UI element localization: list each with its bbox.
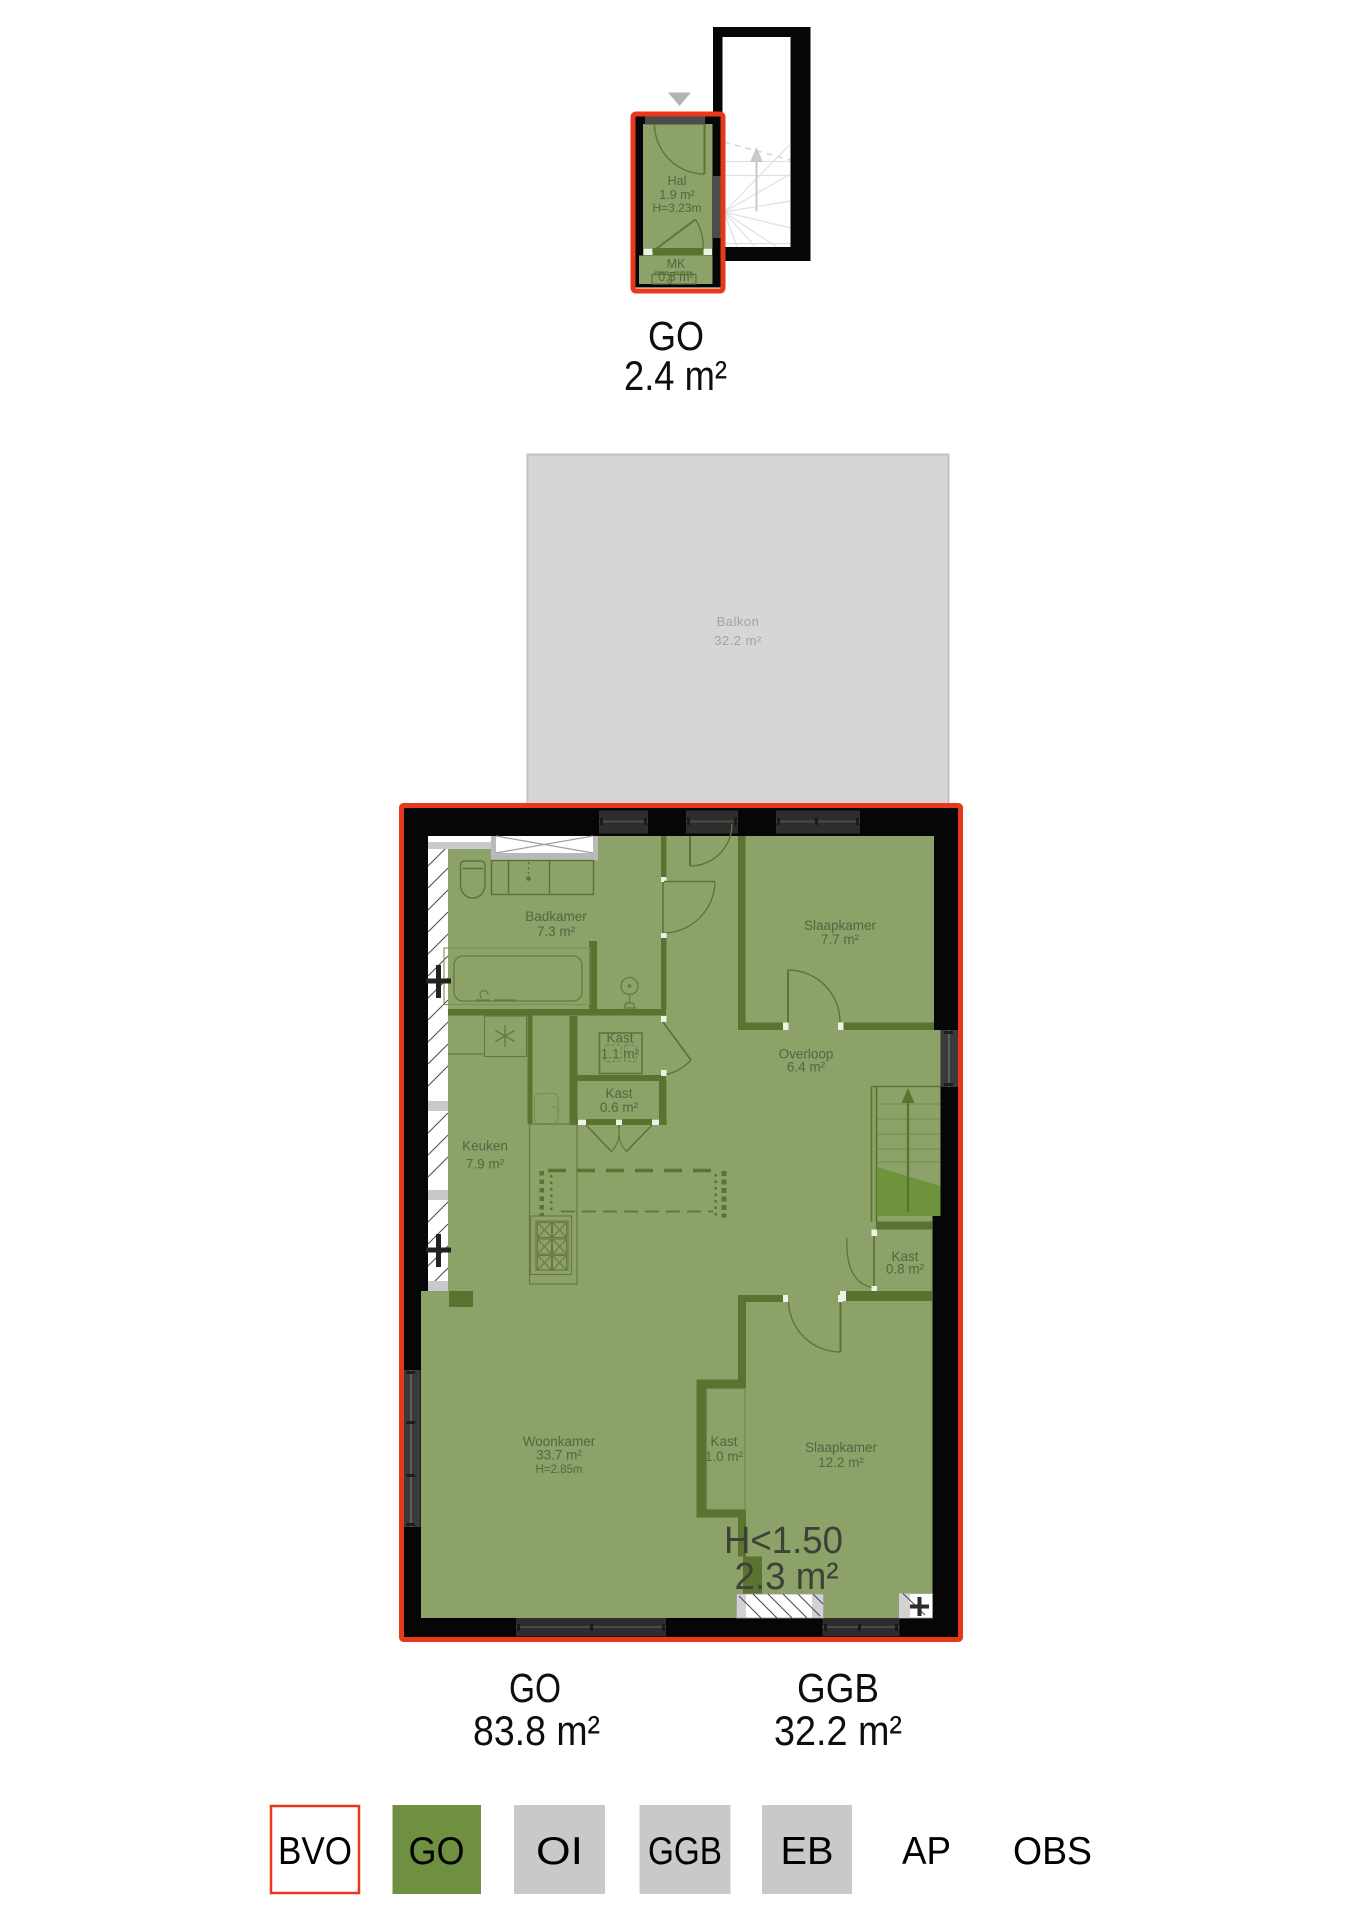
svg-text:OI: OI xyxy=(536,1830,583,1873)
svg-text:Keuken: Keuken xyxy=(462,1139,508,1154)
svg-text:MK: MK xyxy=(667,257,686,271)
svg-text:Kast: Kast xyxy=(606,1031,633,1046)
svg-text:7.7 m²: 7.7 m² xyxy=(821,932,860,947)
svg-text:0.6 m²: 0.6 m² xyxy=(600,1100,639,1115)
svg-text:Badkamer: Badkamer xyxy=(525,909,587,924)
svg-text:83.8 m²: 83.8 m² xyxy=(473,1707,600,1754)
svg-text:EB: EB xyxy=(781,1830,834,1873)
svg-text:2.4 m²: 2.4 m² xyxy=(624,352,727,399)
svg-text:7.9 m²: 7.9 m² xyxy=(466,1157,505,1172)
svg-text:Slaapkamer: Slaapkamer xyxy=(805,1440,878,1455)
svg-text:1.9 m²: 1.9 m² xyxy=(659,188,694,202)
svg-text:Kast: Kast xyxy=(710,1434,737,1449)
svg-text:H=2.85m: H=2.85m xyxy=(536,1464,583,1476)
svg-text:Slaapkamer: Slaapkamer xyxy=(804,918,877,933)
svg-text:2.3 m²: 2.3 m² xyxy=(735,1556,839,1598)
svg-text:32.2 m²: 32.2 m² xyxy=(714,633,762,648)
svg-text:6.4 m²: 6.4 m² xyxy=(787,1060,826,1075)
svg-text:Balkon: Balkon xyxy=(717,614,760,629)
svg-text:Hal: Hal xyxy=(668,174,687,188)
svg-text:Kast: Kast xyxy=(605,1086,632,1101)
svg-text:GO: GO xyxy=(509,1665,561,1711)
svg-text:1.0 m²: 1.0 m² xyxy=(705,1449,744,1464)
svg-text:32.2 m²: 32.2 m² xyxy=(774,1707,902,1754)
svg-text:0.5 m²: 0.5 m² xyxy=(658,270,693,284)
svg-text:H=3.23m: H=3.23m xyxy=(652,201,701,215)
svg-text:AP: AP xyxy=(902,1830,951,1873)
svg-text:7.3 m²: 7.3 m² xyxy=(537,924,576,939)
svg-text:33.7 m²: 33.7 m² xyxy=(536,1448,582,1463)
svg-text:BVO: BVO xyxy=(278,1830,352,1873)
svg-text:GGB: GGB xyxy=(648,1830,722,1873)
svg-text:0.8 m²: 0.8 m² xyxy=(886,1262,925,1277)
svg-text:GGB: GGB xyxy=(797,1665,879,1711)
svg-text:12.2 m²: 12.2 m² xyxy=(818,1455,864,1470)
svg-text:GO: GO xyxy=(409,1830,465,1873)
svg-text:1.1 m²: 1.1 m² xyxy=(601,1047,640,1062)
svg-text:OBS: OBS xyxy=(1013,1830,1092,1873)
